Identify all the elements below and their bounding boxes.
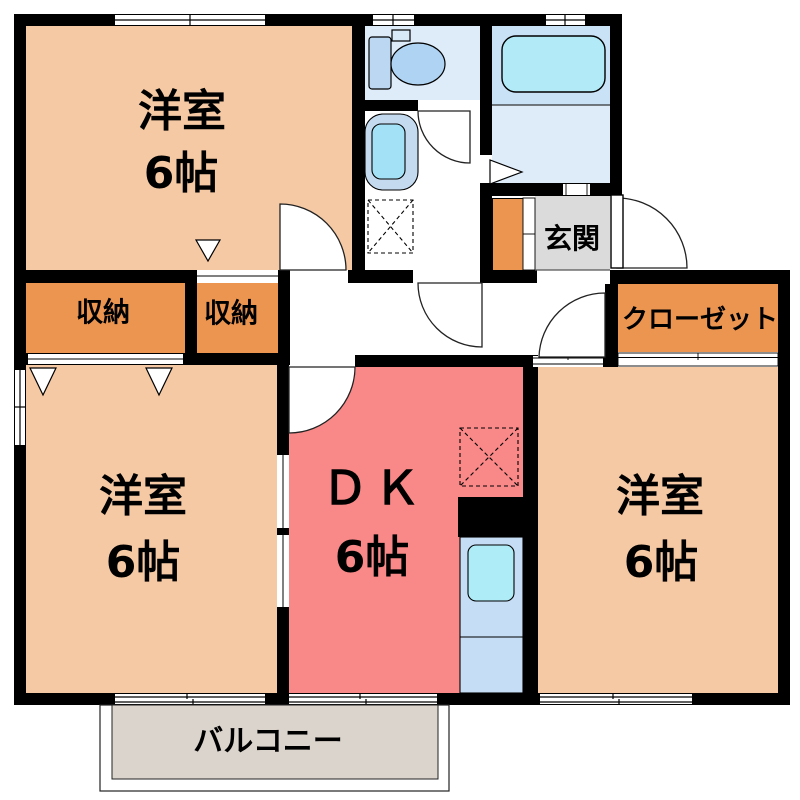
door-swing-arc-icon — [280, 204, 346, 270]
folding-door-triangle-icon — [30, 368, 56, 395]
closet-sliding-door-icon — [618, 353, 778, 366]
storage-2-label: 収納 — [204, 301, 258, 328]
balcony-label: バルコニー — [193, 727, 342, 757]
symbols-overlay — [0, 0, 800, 800]
door-swing-arc-icon — [289, 367, 355, 433]
sliding-window-icon — [373, 14, 414, 26]
folding-door-triangle-icon — [490, 160, 522, 184]
shoe-counter-icon — [523, 198, 535, 270]
room-nw-size: 6帖 — [144, 152, 219, 196]
room-partition-opening-icon — [277, 455, 289, 607]
sliding-window-icon — [14, 370, 26, 445]
dk-name: ＤＫ — [322, 465, 426, 511]
folding-door-triangle-icon — [146, 368, 172, 395]
folding-door-triangle-icon — [196, 240, 220, 261]
kitchen-counter — [458, 497, 538, 537]
front-door-leaf — [611, 195, 623, 268]
closet-sliding-door-icon — [197, 271, 278, 282]
kitchen-sink-icon — [460, 537, 523, 693]
dk-size: 6帖 — [335, 536, 410, 580]
sliding-window-icon — [546, 14, 585, 26]
refrigerator-space-icon — [460, 428, 518, 486]
toilet-icon — [369, 30, 445, 89]
door-swing-arc-icon — [617, 198, 687, 268]
door-swing-arc-icon — [539, 293, 605, 357]
room-nw-name: 洋室 — [138, 90, 226, 134]
room-se-name: 洋室 — [616, 475, 704, 519]
room-sw-size: 6帖 — [106, 541, 181, 585]
balcony-sliding-door-icon — [289, 693, 437, 705]
sliding-window-icon — [115, 14, 265, 26]
room-sw-name: 洋室 — [99, 475, 187, 519]
room-se-size: 6帖 — [624, 541, 699, 585]
entrance-label: 玄関 — [544, 225, 600, 253]
storage-1-label: 収納 — [76, 300, 130, 327]
floorplan-canvas: 洋室 6帖 収納 収納 玄関 クローゼット 洋室 6帖 ＤＫ 6帖 洋室 6帖 … — [0, 0, 800, 800]
balcony-sliding-door-icon — [115, 693, 265, 705]
washing-machine-pan-icon — [368, 200, 413, 253]
wall-vent-icon — [563, 184, 590, 195]
bathtub-icon — [502, 36, 605, 92]
closet-sliding-door-icon — [28, 354, 183, 364]
closet-label: クローゼット — [622, 307, 778, 333]
door-swing-arc-icon — [418, 283, 482, 347]
door-swing-arc-icon — [418, 111, 470, 163]
sliding-window-icon — [540, 693, 692, 705]
washbasin-icon — [365, 114, 418, 190]
